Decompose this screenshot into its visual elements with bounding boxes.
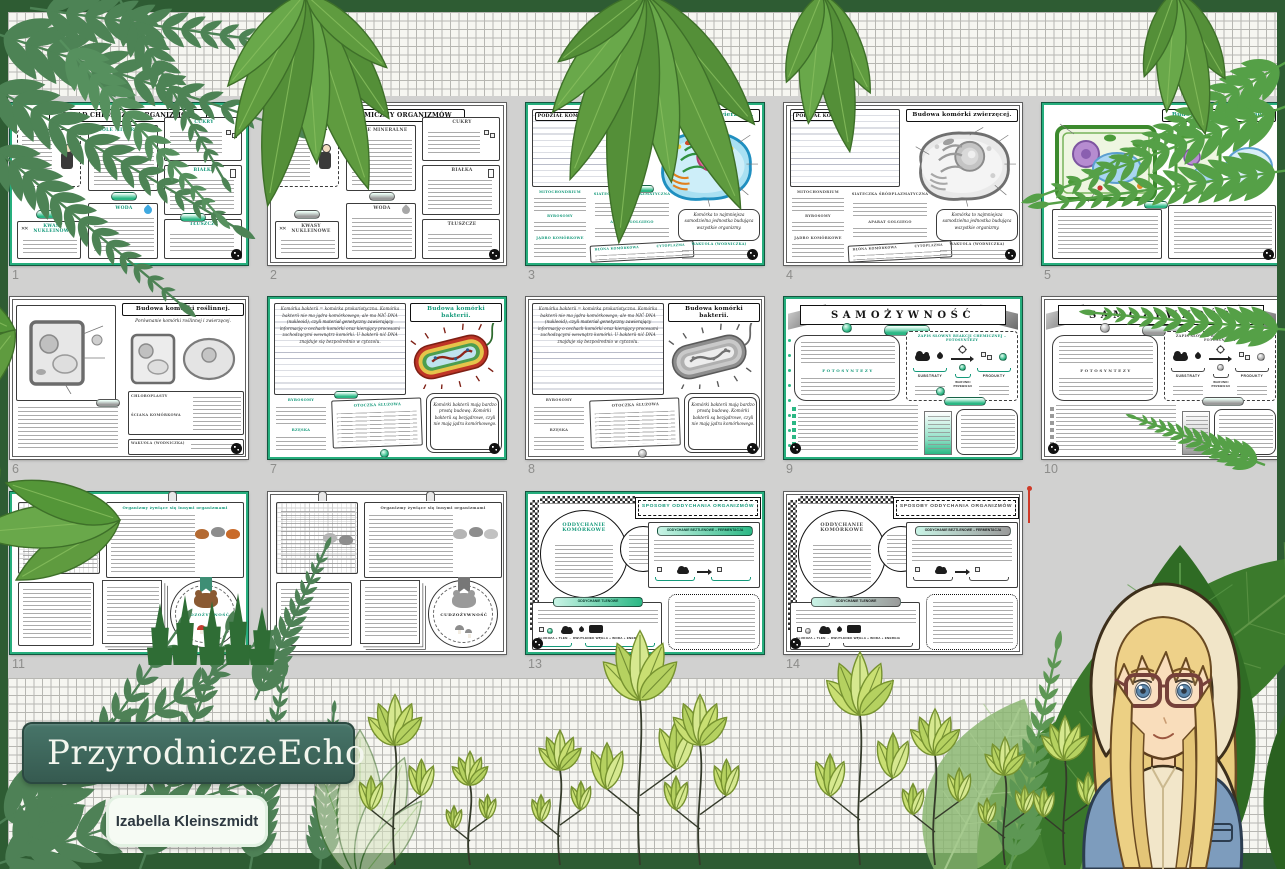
page-number: 10 bbox=[1044, 462, 1058, 476]
fox-icon bbox=[226, 529, 240, 539]
sheet-title: SAMOŻYWNOŚĆ bbox=[800, 305, 1006, 325]
glucose-cube-icon bbox=[539, 627, 544, 632]
page-number: 11 bbox=[12, 657, 25, 671]
sugar-cube-icon bbox=[490, 133, 495, 138]
worksheet-thumbnail-4[interactable]: PODZIAŁ KOMÓREK Budowa komórki zwierzęce… bbox=[784, 103, 1022, 265]
vocab-column bbox=[1182, 411, 1210, 455]
bialka-box: BIAŁKA bbox=[164, 165, 242, 215]
checker-decor bbox=[798, 496, 894, 504]
sole-box: SOLE MINERALNE bbox=[88, 125, 158, 191]
worksheet-thumbnail-8[interactable]: Komórka bakterii = komórka prokariotyczn… bbox=[526, 297, 764, 459]
mushroom-icon bbox=[455, 625, 464, 630]
woda-box: WODA bbox=[346, 203, 416, 259]
worksheet-thumbnail-11[interactable]: Organizmy żywiące się innymi organizmami… bbox=[10, 492, 248, 654]
dna-icon: ✕✕ bbox=[279, 226, 285, 232]
aparat-label: APARAT GOLGIEGO bbox=[850, 221, 930, 241]
fotosynteza-box: ZAPIS SŁOWNY REAKCJI CHEMICZNEJ – FOTOSY… bbox=[1164, 331, 1276, 401]
logo-stamp bbox=[231, 443, 242, 454]
sugar-cube-icon bbox=[232, 133, 237, 138]
summary-box bbox=[668, 594, 760, 650]
aparat-label: APARAT GOLGIEGO bbox=[592, 221, 672, 241]
bialka-box: BIAŁKA bbox=[422, 165, 500, 215]
sheet-title: Budowa komórki roślinnej. bbox=[1162, 109, 1276, 122]
notes-box bbox=[956, 409, 1018, 455]
glucose-cube-icon bbox=[657, 567, 662, 572]
intro-box bbox=[275, 129, 339, 187]
siateczka-label: SIATECZKA ŚRÓDPLAZMATYCZNA bbox=[850, 193, 930, 219]
co2-cloud-icon bbox=[935, 569, 947, 574]
page-number: 2 bbox=[270, 268, 277, 282]
oxygen-icon bbox=[547, 628, 553, 634]
chloroplasty-box: CHLOROPLASTY ŚCIANA KOMÓRKOWA bbox=[128, 391, 244, 435]
capsule-decor bbox=[96, 399, 120, 407]
rybosomy-label: RYBOSOMY bbox=[274, 399, 328, 427]
brand-plate: PrzyrodniczeEcho bbox=[22, 722, 355, 784]
capsule-decor bbox=[294, 210, 320, 219]
sheet-title-bar: SPOSOBY ODDYCHANIA ORGANIZMÓW bbox=[638, 500, 758, 516]
rybosomy-label: RYBOSOMY bbox=[532, 399, 586, 427]
caption-box: Komórka to najmniejsza samodzielna jedno… bbox=[678, 209, 760, 241]
definition-box: Komórka bakterii = komórka prokariotyczn… bbox=[532, 303, 664, 395]
definition-box: FOTOSYNTEZY bbox=[794, 335, 900, 401]
podzial-box: PODZIAŁ KOMÓREK bbox=[790, 109, 900, 187]
sugar-cube-icon bbox=[226, 130, 231, 135]
sun-icon bbox=[959, 346, 966, 353]
oddychanie-komorkowe-circle: ODDYCHANIE KOMÓRKOWE bbox=[798, 510, 886, 598]
fotosynteza-box: ZAPIS SŁOWNY REAKCJI CHEMICZNEJ – FOTOSY… bbox=[906, 331, 1018, 401]
siateczka-label: SIATECZKA ŚRÓDPLAZMATYCZNA bbox=[592, 193, 672, 219]
worksheet-thumbnail-14[interactable]: SPOSOBY ODDYCHANIA ORGANIZMÓW ODDYCHANIE… bbox=[784, 492, 1022, 654]
chlorophyll-dot bbox=[959, 364, 966, 371]
paper-clip-icon bbox=[318, 491, 327, 501]
labels-box bbox=[1168, 205, 1276, 259]
page-number: 6 bbox=[12, 462, 19, 476]
water-drop-icon bbox=[936, 352, 944, 360]
scientist-icon bbox=[60, 144, 75, 171]
sheet-title: Budowa komórki zwierzęcej. bbox=[906, 109, 1018, 122]
bear-icon bbox=[194, 593, 218, 608]
summary-box bbox=[926, 594, 1018, 650]
logo-stamp bbox=[489, 443, 500, 454]
page-number: 14 bbox=[786, 657, 800, 671]
cukry-box: CUKRY bbox=[422, 117, 500, 161]
tlenowe-box: ODDYCHANIE TLENOWE GLUKOZA + TLEN → DWUT… bbox=[532, 602, 662, 650]
page-number: 8 bbox=[528, 462, 535, 476]
capsule-decor bbox=[369, 192, 395, 201]
jadro-label: JĄDRO KOMÓRKOWE bbox=[532, 237, 588, 261]
arrow-icon bbox=[1209, 358, 1229, 360]
glucose-cube-icon bbox=[915, 567, 920, 572]
page-number: 13 bbox=[528, 657, 542, 671]
paper-clip-icon bbox=[168, 491, 177, 501]
author-plate: Izabella Kleinszmidt bbox=[106, 795, 268, 847]
co2-cloud-icon bbox=[561, 629, 573, 634]
product-cube-icon bbox=[717, 567, 722, 572]
questions-list bbox=[1050, 405, 1178, 455]
worksheet-thumbnail-7[interactable]: Komórka bakterii = komórka prokariotyczn… bbox=[268, 297, 506, 459]
milk-carton-icon bbox=[230, 169, 236, 178]
mushroom-icon bbox=[465, 629, 472, 633]
woda-box: WODA bbox=[88, 203, 158, 259]
capsule-decor bbox=[1144, 201, 1168, 209]
glucose-cube-icon bbox=[797, 627, 802, 632]
logo-stamp bbox=[489, 249, 500, 260]
page-number: 9 bbox=[786, 462, 793, 476]
podzial-box: PODZIAŁ KOMÓREK bbox=[532, 109, 642, 187]
caption-box: Komórka to najmniejsza samodzielna jedno… bbox=[936, 209, 1018, 241]
co2-cloud-icon bbox=[1173, 354, 1188, 361]
battery-icon bbox=[847, 625, 861, 633]
labels-column bbox=[16, 405, 122, 453]
water-drop-icon bbox=[578, 626, 585, 633]
grid-paper-top bbox=[8, 12, 1277, 96]
sphere-decor bbox=[842, 323, 852, 333]
worksheet-thumbnail-3[interactable]: PODZIAŁ KOMÓREK Budowa komórki zwierzęce… bbox=[526, 103, 764, 265]
otoczka-box: OTOCZKA ŚLUZOWA bbox=[331, 397, 423, 448]
parasites-box bbox=[18, 582, 94, 646]
worksheet-thumbnail-9[interactable]: SAMOŻYWNOŚĆ FOTOSYNTEZY ZAPIS SŁOWNY REA… bbox=[784, 297, 1022, 459]
capsule-decor bbox=[111, 192, 137, 201]
vocab-column bbox=[924, 411, 952, 455]
sphere-decor bbox=[638, 449, 647, 458]
mito-label: MITOCHONDRIUM bbox=[532, 191, 588, 213]
cell-comparison-diagram bbox=[1172, 129, 1276, 201]
bacteria-cell-diagram bbox=[666, 323, 760, 389]
rzeska-label: RZĘSKA bbox=[532, 429, 586, 453]
kwasy-box: ✕✕ KWASY NUKLEINOWE bbox=[17, 221, 81, 259]
logo-stamp bbox=[1005, 249, 1016, 260]
squirrel-icon bbox=[453, 529, 467, 539]
worksheet-thumbnail-5[interactable]: Budowa komórki roślinnej. bbox=[1042, 103, 1280, 265]
sheet-title: Budowa komórki zwierzęcej. bbox=[648, 109, 760, 122]
logo-stamp bbox=[790, 638, 801, 649]
glucose-cube-icon bbox=[987, 355, 992, 360]
carnivores-box: Organizmy żywiące się innymi organizmami bbox=[106, 502, 244, 578]
water-drop-icon bbox=[1194, 352, 1202, 360]
sheet-title-bar: SPOSOBY ODDYCHANIA ORGANIZMÓW bbox=[896, 500, 1016, 516]
logo-stamp bbox=[747, 249, 758, 260]
author-name: Izabella Kleinszmidt bbox=[116, 813, 259, 830]
logo-stamp bbox=[747, 443, 758, 454]
logo-stamp bbox=[790, 443, 801, 454]
cell-figure-box bbox=[16, 305, 116, 401]
logo-stamp bbox=[231, 249, 242, 260]
glucose-cube-icon bbox=[1245, 355, 1250, 360]
worksheet-thumbnail-10[interactable]: SAMOŻYWNOŚĆ FOTOSYNTEZY ZAPIS SŁOWNY REA… bbox=[1042, 297, 1280, 459]
kwasy-box: ✕✕ KWASY NUKLEINOWE bbox=[275, 221, 339, 259]
product-preview-poster: SKŁAD CHEMICZNY ORGANIZMÓW ✕✕ KWASY NUKL… bbox=[0, 0, 1285, 869]
otoczka-box: OTOCZKA ŚLUZOWA bbox=[589, 397, 681, 448]
capsule-decor bbox=[334, 391, 358, 399]
bacteria-cell-diagram bbox=[408, 323, 502, 389]
dna-icon: ✕✕ bbox=[21, 226, 27, 232]
wakuola-box: WAKUOLA (WODNICZKA) bbox=[128, 439, 244, 455]
battery-icon bbox=[589, 625, 603, 633]
sheet-title: Budowa komórki bakterii. bbox=[410, 303, 502, 322]
capsule-decor bbox=[180, 213, 206, 222]
paper-clip-icon bbox=[60, 491, 69, 501]
co2-cloud-icon bbox=[915, 354, 930, 361]
rybosomy-label: RYBOSOMY bbox=[532, 215, 588, 235]
sun-icon bbox=[1217, 346, 1224, 353]
red-marker bbox=[1028, 489, 1030, 523]
jadro-label: JĄDRO KOMÓRKOWE bbox=[790, 237, 846, 261]
logo-stamp bbox=[1048, 443, 1059, 454]
subtitle: Porównanie komórki roślinnej i zwierzęce… bbox=[124, 319, 242, 326]
brand-name: PrzyrodniczeEcho bbox=[47, 733, 366, 773]
definition-box: FOTOSYNTEZY bbox=[1052, 335, 1158, 401]
questions-list bbox=[792, 405, 920, 455]
mushroom-icon bbox=[207, 629, 214, 633]
checker-decor bbox=[540, 496, 636, 504]
labels-box bbox=[1052, 209, 1162, 259]
squirrel-icon bbox=[195, 529, 209, 539]
worksheet-thumbnail-1[interactable]: SKŁAD CHEMICZNY ORGANIZMÓW ✕✕ KWASY NUKL… bbox=[10, 103, 248, 265]
cudzozywnosc-badge: CUDZOŻYWNOŚĆ bbox=[170, 580, 240, 648]
arrow-icon bbox=[697, 571, 709, 573]
frame-right bbox=[1277, 0, 1285, 869]
bear-icon bbox=[452, 593, 476, 608]
sphere-decor bbox=[936, 387, 945, 396]
capsule-decor bbox=[944, 397, 986, 406]
oxygen-icon bbox=[805, 628, 811, 634]
sheet-title: Budowa komórki roślinnej. bbox=[122, 303, 244, 316]
cukry-box: CUKRY bbox=[164, 117, 242, 161]
worksheet-thumbnail-12[interactable]: Organizmy żywiące się innymi organizmami… bbox=[268, 492, 506, 654]
beztlenowe-box: ODDYCHANIE BEZTLENOWE – FERMENTACJA bbox=[648, 522, 760, 588]
worksheet-thumbnail-2[interactable]: SKŁAD CHEMICZNY ORGANIZMÓW ✕✕ KWASY NUKL… bbox=[268, 103, 506, 265]
paper-clip-icon bbox=[426, 491, 435, 501]
stacked-cards bbox=[102, 580, 162, 644]
chlorophyll-dot bbox=[1217, 364, 1224, 371]
frame-bottom bbox=[0, 853, 1285, 869]
frame-left bbox=[0, 0, 8, 869]
milk-carton-icon bbox=[488, 169, 494, 178]
co2-cloud-icon bbox=[819, 629, 831, 634]
oddychanie-komorkowe-circle: ODDYCHANIE KOMÓRKOWE bbox=[540, 510, 628, 598]
sphere-decor bbox=[380, 449, 389, 458]
water-drop-icon bbox=[836, 626, 843, 633]
beztlenowe-box: ODDYCHANIE BEZTLENOWE – FERMENTACJA bbox=[906, 522, 1018, 588]
oxygen-icon bbox=[1257, 353, 1265, 361]
sheet-title: Budowa komórki bakterii. bbox=[668, 303, 760, 322]
definition-box: Komórka bakterii = komórka prokariotyczn… bbox=[274, 303, 406, 395]
capsule-decor bbox=[1202, 397, 1244, 406]
wolf-icon bbox=[211, 527, 225, 537]
cudzozywnosc-badge: CUDZOŻYWNOŚĆ bbox=[428, 580, 498, 648]
rzeska-label: RZĘSKA bbox=[274, 429, 328, 453]
worksheet-thumbnail-13[interactable]: SPOSOBY ODDYCHANIA ORGANIZMÓW ODDYCHANIE… bbox=[526, 492, 764, 654]
mito-label: MITOCHONDRIUM bbox=[790, 191, 846, 213]
sphere-decor bbox=[1100, 323, 1110, 333]
glucose-cube-icon bbox=[981, 352, 986, 357]
herbivores-box bbox=[18, 502, 100, 574]
mushroom-icon bbox=[197, 625, 206, 630]
page-number: 7 bbox=[270, 462, 277, 476]
page-number: 1 bbox=[12, 268, 19, 282]
carnivores-box: Organizmy żywiące się innymi organizmami bbox=[364, 502, 502, 578]
sugar-cube-icon bbox=[484, 130, 489, 135]
glucose-cube-icon bbox=[1239, 352, 1244, 357]
page-number: 5 bbox=[1044, 268, 1051, 282]
arrow-icon bbox=[955, 571, 967, 573]
hare-icon bbox=[339, 535, 353, 545]
page-number: 3 bbox=[528, 268, 535, 282]
parasites-box bbox=[276, 582, 352, 646]
frame-top bbox=[0, 0, 1285, 12]
herbivores-box bbox=[276, 502, 358, 574]
notes-box bbox=[1214, 409, 1276, 455]
intro-box bbox=[17, 129, 81, 187]
page-number: 4 bbox=[786, 268, 793, 282]
co2-cloud-icon bbox=[677, 569, 689, 574]
scientist-icon bbox=[318, 144, 333, 171]
cell-comparison-diagram bbox=[128, 331, 240, 387]
squirrel-icon bbox=[323, 533, 337, 543]
capsule-decor bbox=[632, 185, 654, 193]
oxygen-icon bbox=[999, 353, 1007, 361]
product-cube-icon bbox=[975, 567, 980, 572]
sheet-title: SAMOŻYWNOŚĆ bbox=[1058, 305, 1264, 325]
tlenowe-box: ODDYCHANIE TLENOWE GLUKOZA + TLEN → DWUT… bbox=[790, 602, 920, 650]
page-number: 12 bbox=[270, 657, 284, 671]
stacked-cards bbox=[360, 580, 420, 644]
logo-stamp bbox=[1263, 249, 1274, 260]
sole-box: SOLE MINERALNE bbox=[346, 125, 416, 191]
capsule-decor bbox=[36, 210, 62, 219]
wolf-icon bbox=[469, 527, 483, 537]
arrow-icon bbox=[951, 358, 971, 360]
worksheet-thumbnail-6[interactable]: Budowa komórki roślinnej. Porównanie kom… bbox=[10, 297, 248, 459]
logo-stamp bbox=[532, 638, 543, 649]
fox-icon bbox=[484, 529, 498, 539]
plant-cell-diagram bbox=[1054, 123, 1158, 203]
plant-cell-diagram bbox=[25, 314, 109, 394]
rybosomy-label: RYBOSOMY bbox=[790, 215, 846, 235]
